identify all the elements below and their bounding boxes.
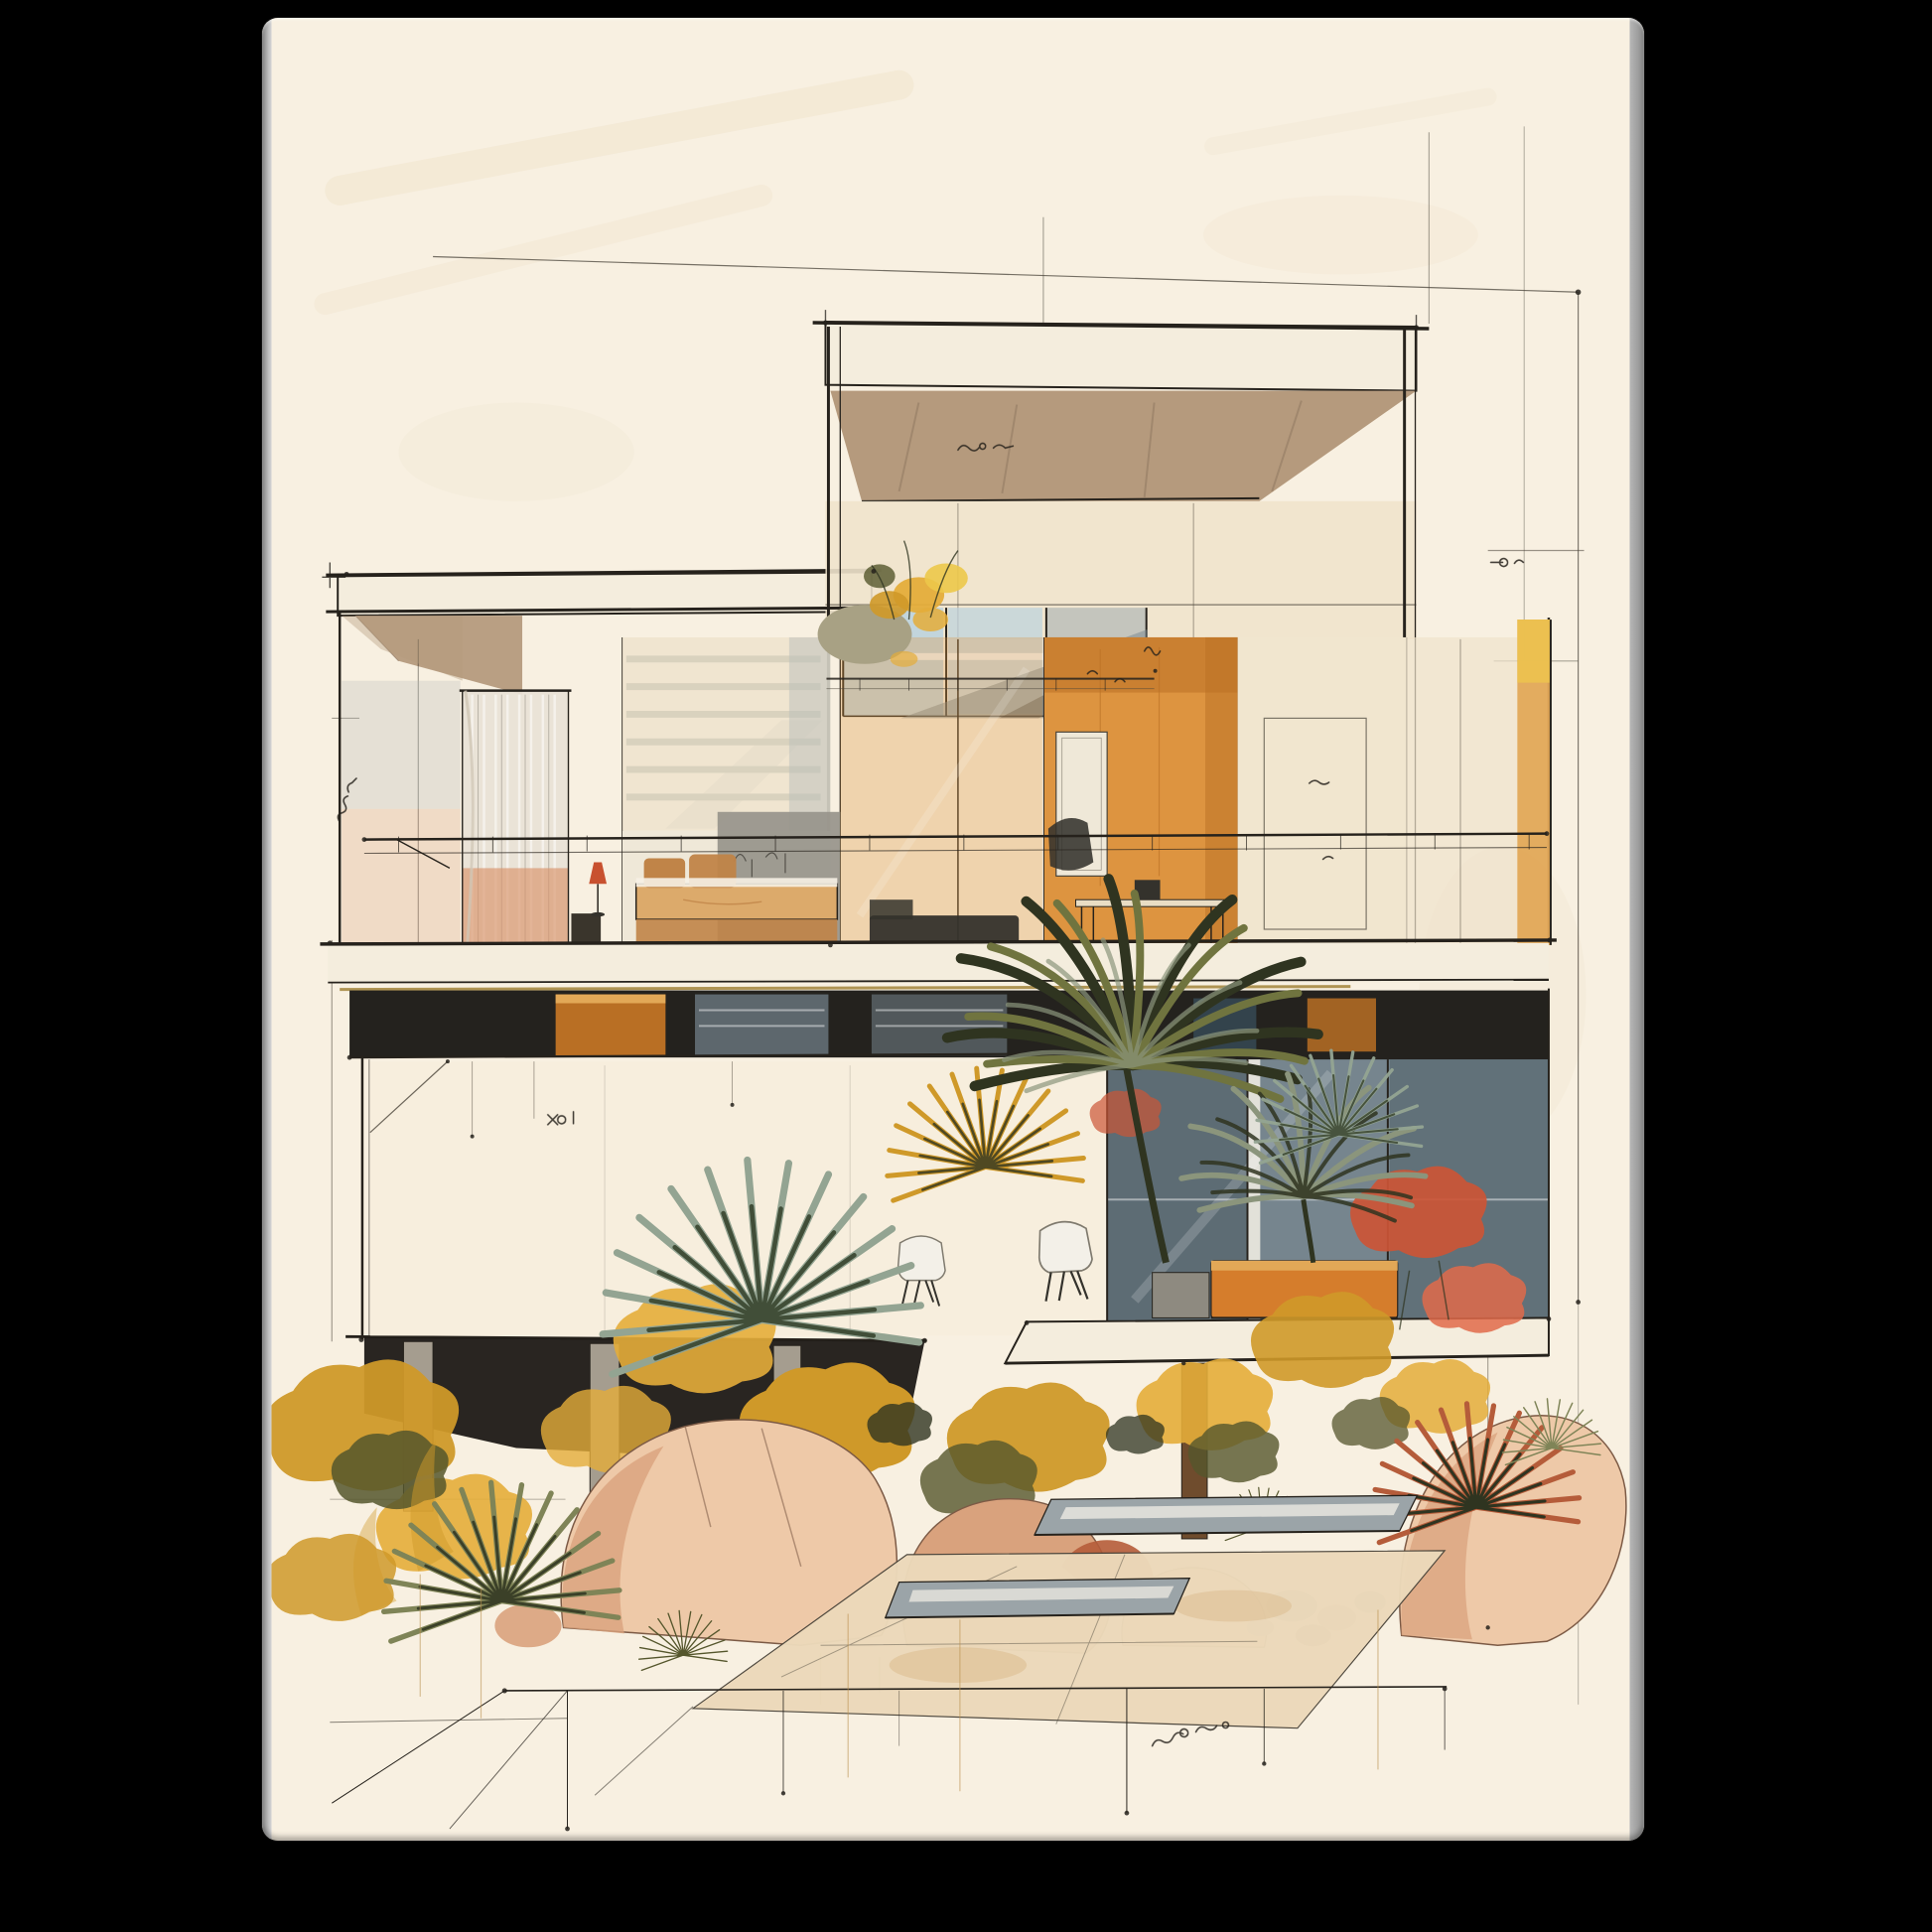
dark-chair bbox=[1048, 818, 1093, 871]
orange-edge-fin bbox=[1517, 620, 1551, 945]
artwork-svg bbox=[271, 28, 1630, 1833]
sheer-curtain bbox=[460, 691, 572, 947]
water-channel bbox=[886, 1579, 1189, 1618]
water-channel bbox=[1035, 1495, 1417, 1535]
floor-slab bbox=[320, 940, 1556, 990]
orange-cabinet bbox=[556, 995, 666, 1056]
black-backdrop bbox=[0, 0, 1932, 1932]
gray-planter-cube bbox=[1153, 1273, 1209, 1318]
artwork-frame bbox=[271, 28, 1630, 1833]
cream-panel-wall bbox=[1238, 637, 1518, 945]
lower-left-recessed-band bbox=[349, 991, 1107, 1058]
poster-mockup bbox=[262, 18, 1644, 1841]
center-glass-reflection bbox=[840, 637, 1042, 957]
